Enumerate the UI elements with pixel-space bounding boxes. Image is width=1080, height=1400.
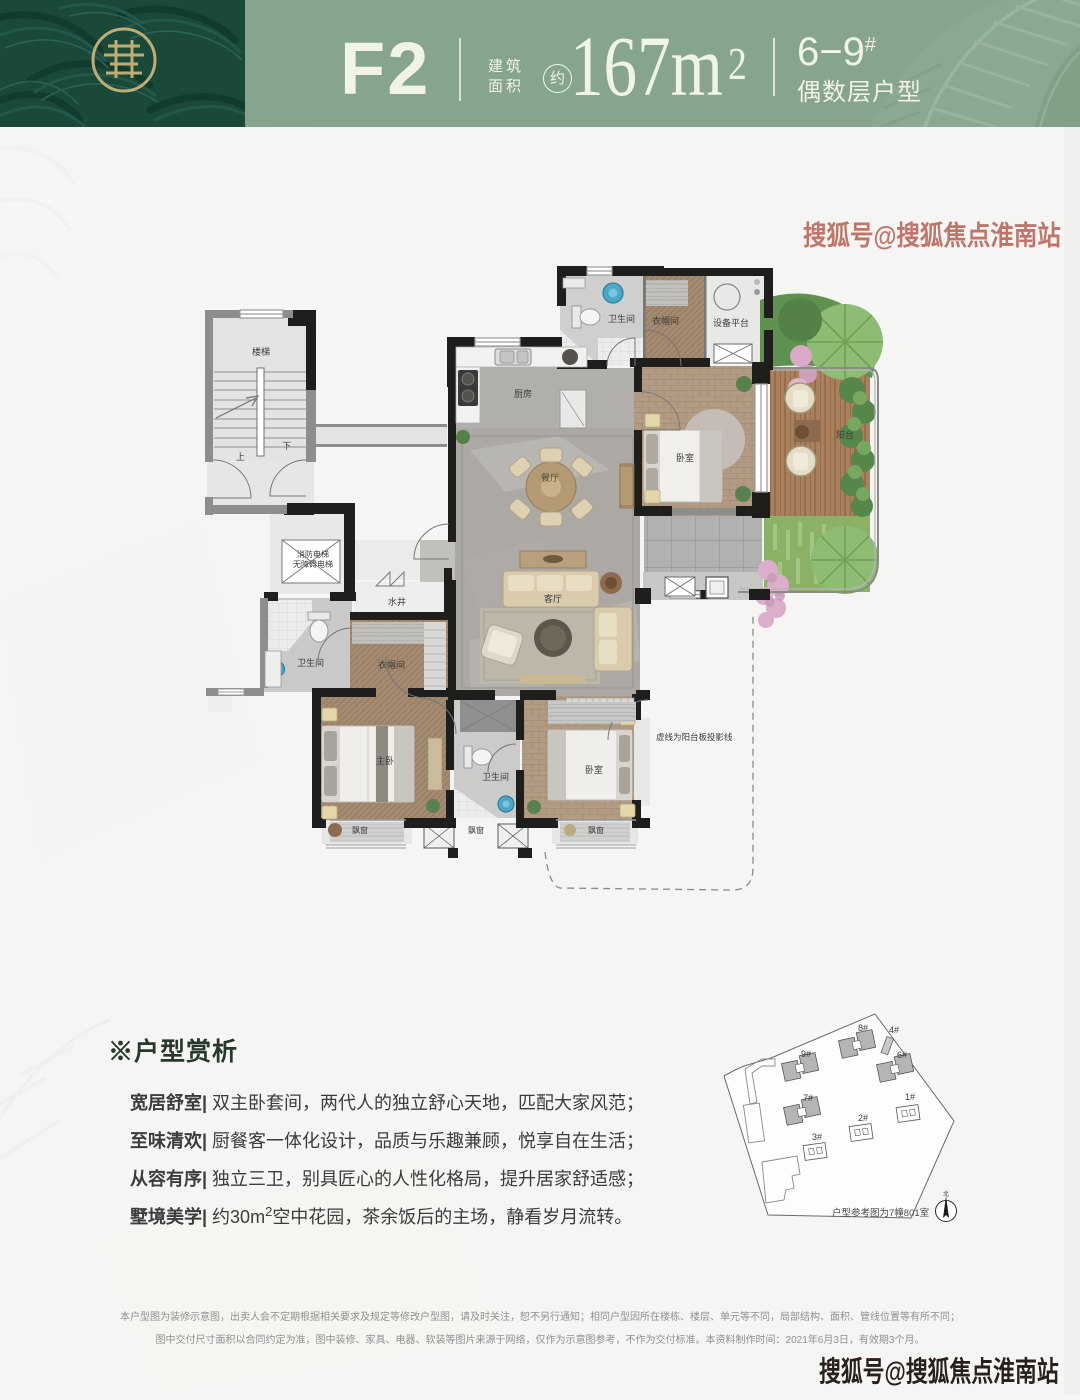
svg-text:4#: 4# <box>889 1025 899 1035</box>
svg-text:1#: 1# <box>905 1092 915 1102</box>
svg-text:户型参考图为7幢801室: 户型参考图为7幢801室 <box>832 1207 929 1219</box>
svg-text:8#: 8# <box>858 1023 868 1033</box>
svg-text:3#: 3# <box>812 1132 822 1142</box>
svg-text:北: 北 <box>943 1190 949 1198</box>
svg-text:6#: 6# <box>897 1050 907 1060</box>
svg-text:2#: 2# <box>858 1113 868 1123</box>
svg-text:7#: 7# <box>803 1093 813 1103</box>
svg-text:9#: 9# <box>801 1049 811 1059</box>
